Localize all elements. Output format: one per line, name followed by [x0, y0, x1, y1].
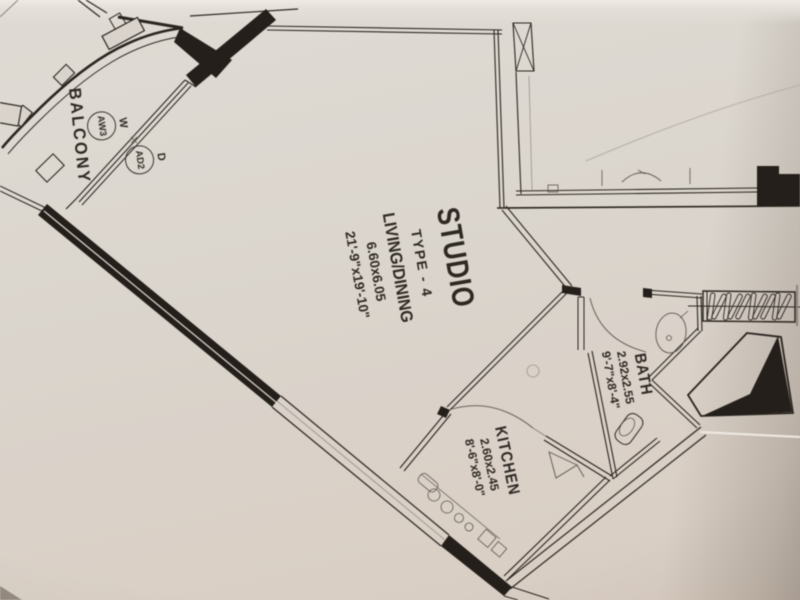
door-tag-circle: AD2 [123, 144, 156, 177]
window-tag-aw3: W AW3 [85, 108, 131, 143]
top-right-room [267, 23, 800, 208]
entry-hall-walls [506, 427, 706, 589]
window-tag-circle: AW3 [85, 110, 118, 143]
door-tag-ad2: D AD2 [123, 142, 169, 177]
floorplan-photo: STUDIO TYPE - 4 LIVING/DINING 6.60x6.05 … [0, 0, 800, 600]
photo-artifacts [0, 432, 800, 600]
window-tag-letter: W [116, 117, 129, 129]
plan-scene: STUDIO TYPE - 4 LIVING/DINING 6.60x6.05 … [0, 0, 800, 600]
door-tag-letter: D [154, 152, 167, 162]
adjacent-unit-wall [0, 0, 298, 17]
bath-label-block: BATH 2.92x2.55 9'-7"x8'-4" [598, 344, 658, 410]
duct-shaft [688, 333, 793, 416]
louver-strip [688, 285, 800, 326]
studio-title-block: STUDIO TYPE - 4 LIVING/DINING 6.60x6.05 … [337, 193, 488, 337]
